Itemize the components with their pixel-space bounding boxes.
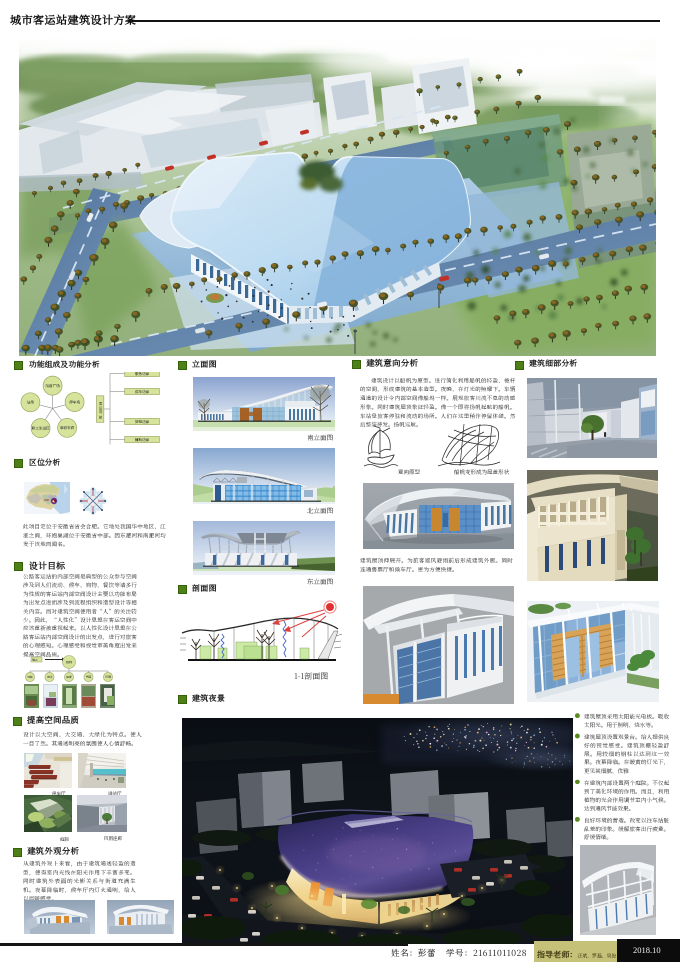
svg-text:停车场: 停车场: [68, 399, 80, 405]
svg-text:空间: 空间: [65, 675, 72, 679]
svg-text:管理功能: 管理功能: [134, 419, 150, 425]
svg-text:合肥: 合肥: [43, 498, 49, 502]
svg-text:客运功能: 客运功能: [98, 401, 103, 419]
svg-text:环境: 环境: [104, 675, 111, 679]
svg-text:职工生活区: 职工生活区: [31, 426, 50, 432]
svg-text:候车功能: 候车功能: [134, 389, 150, 395]
svg-text:站房: 站房: [26, 400, 35, 406]
svg-text:界面: 界面: [85, 675, 92, 679]
svg-text:辅助功能: 辅助功能: [134, 437, 150, 443]
svg-text:站前广场: 站前广场: [44, 383, 60, 389]
svg-text:理念: 理念: [31, 658, 38, 662]
svg-text:功能: 功能: [26, 675, 33, 679]
svg-text:流线: 流线: [47, 675, 53, 679]
svg-text:目标: 目标: [66, 659, 73, 664]
svg-text:服务功能: 服务功能: [134, 372, 150, 377]
svg-text:维修车间: 维修车间: [59, 425, 75, 431]
